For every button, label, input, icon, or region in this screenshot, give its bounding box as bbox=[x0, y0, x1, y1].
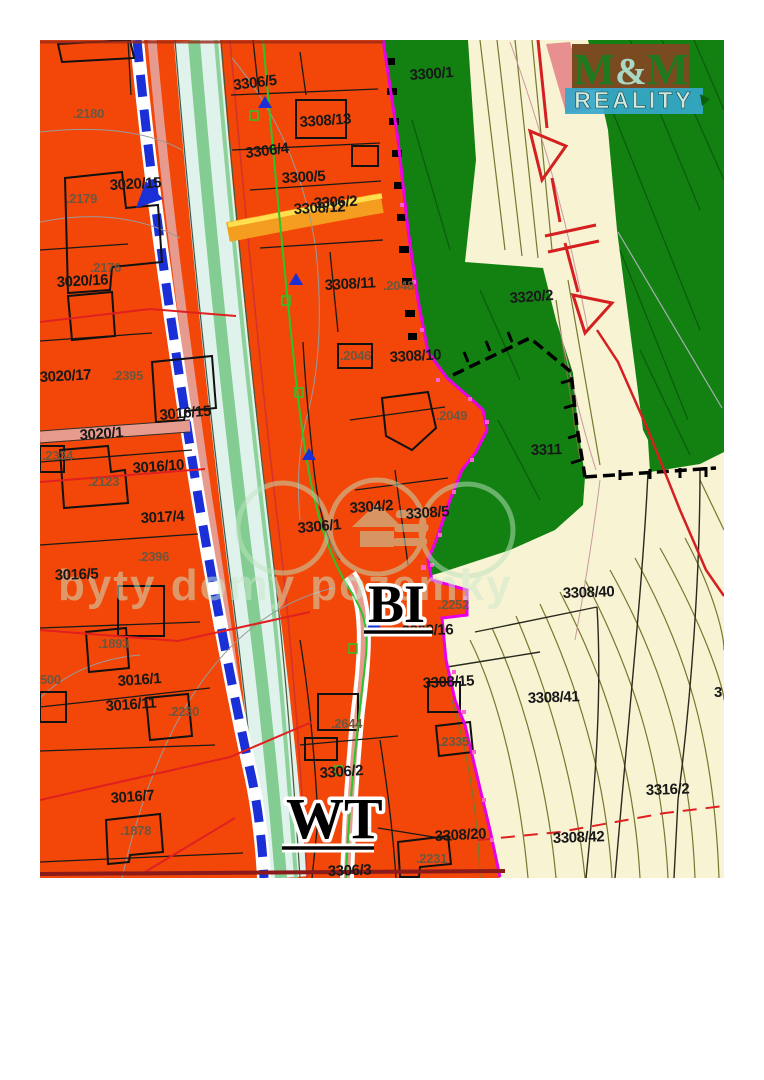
parcel-label: 3308/15 bbox=[422, 672, 474, 692]
building-label: .2252 bbox=[438, 597, 469, 612]
zone-label: WT bbox=[286, 786, 383, 851]
parcel-label: 3308/5 bbox=[405, 503, 450, 523]
parcel-label: 3316/2 bbox=[646, 780, 690, 799]
parcel-label: 3308/20 bbox=[434, 825, 486, 845]
parcel-label: 3306/2 bbox=[319, 762, 364, 782]
parcel-label: 3300/1 bbox=[409, 64, 454, 84]
zone-label: BI bbox=[368, 574, 425, 634]
parcel-label: 3016/1 bbox=[117, 670, 162, 690]
parcel-label: 3308/42 bbox=[553, 828, 605, 847]
building-label: .1893 bbox=[98, 636, 129, 651]
building-label: .2180 bbox=[73, 106, 104, 121]
parcel-label: 3300/5 bbox=[281, 168, 325, 187]
building-label: .2396 bbox=[138, 549, 169, 564]
parcel-label: 3020/16 bbox=[56, 271, 108, 291]
parcel-label: 3308/41 bbox=[528, 688, 580, 707]
building-label: .2123 bbox=[88, 474, 119, 489]
building-label: .2230 bbox=[168, 704, 199, 719]
parcel-label: 3020/15 bbox=[109, 174, 161, 194]
parcel-label: 3304/2 bbox=[349, 497, 394, 517]
parcel-label: 3016/7 bbox=[110, 787, 155, 807]
parcel-label: 3016/11 bbox=[105, 694, 157, 714]
parcel-label: 3308/13 bbox=[299, 110, 352, 131]
building-label: .2231 bbox=[416, 851, 447, 866]
building-label: .2048 bbox=[383, 278, 414, 293]
parcel-label: 3017/4 bbox=[140, 508, 185, 527]
cadastral-map-page: byty domy pozemky .2180.2179.2176.2395.2… bbox=[0, 0, 764, 1080]
building-label: .2179 bbox=[66, 191, 97, 206]
parcel-label: 3320/2 bbox=[509, 287, 554, 307]
parcel-label: 3016/5 bbox=[55, 565, 99, 584]
parcel-label: 3016/10 bbox=[132, 456, 185, 477]
building-label: .1878 bbox=[120, 823, 151, 838]
parcel-label: 3308/40 bbox=[563, 583, 615, 602]
building-label: .2334 bbox=[42, 448, 74, 463]
logo-reality-text: REALITY bbox=[574, 87, 693, 113]
building-label: 500 bbox=[40, 672, 61, 687]
cadastral-map: byty domy pozemky .2180.2179.2176.2395.2… bbox=[0, 0, 764, 1080]
building-label: .2644 bbox=[331, 716, 363, 731]
building-label: .2049 bbox=[436, 408, 467, 423]
building-label: .2335 bbox=[438, 734, 469, 749]
building-label: .2395 bbox=[112, 368, 143, 383]
parcel-label: 3 bbox=[714, 684, 722, 701]
parcel-label: 3306/3 bbox=[328, 861, 372, 880]
parcel-label: 3020/17 bbox=[39, 366, 91, 386]
parcel-label: 3311 bbox=[531, 441, 563, 459]
parcel-label: 3020/1 bbox=[79, 424, 124, 444]
parcel-label: 3308/12 bbox=[293, 198, 345, 218]
parcel-label: 3308/11 bbox=[324, 274, 375, 294]
parcel-label: 3308/10 bbox=[389, 346, 441, 366]
mm-reality-logo: M&M REALITY bbox=[546, 42, 710, 114]
building-label: .2046 bbox=[340, 348, 371, 363]
